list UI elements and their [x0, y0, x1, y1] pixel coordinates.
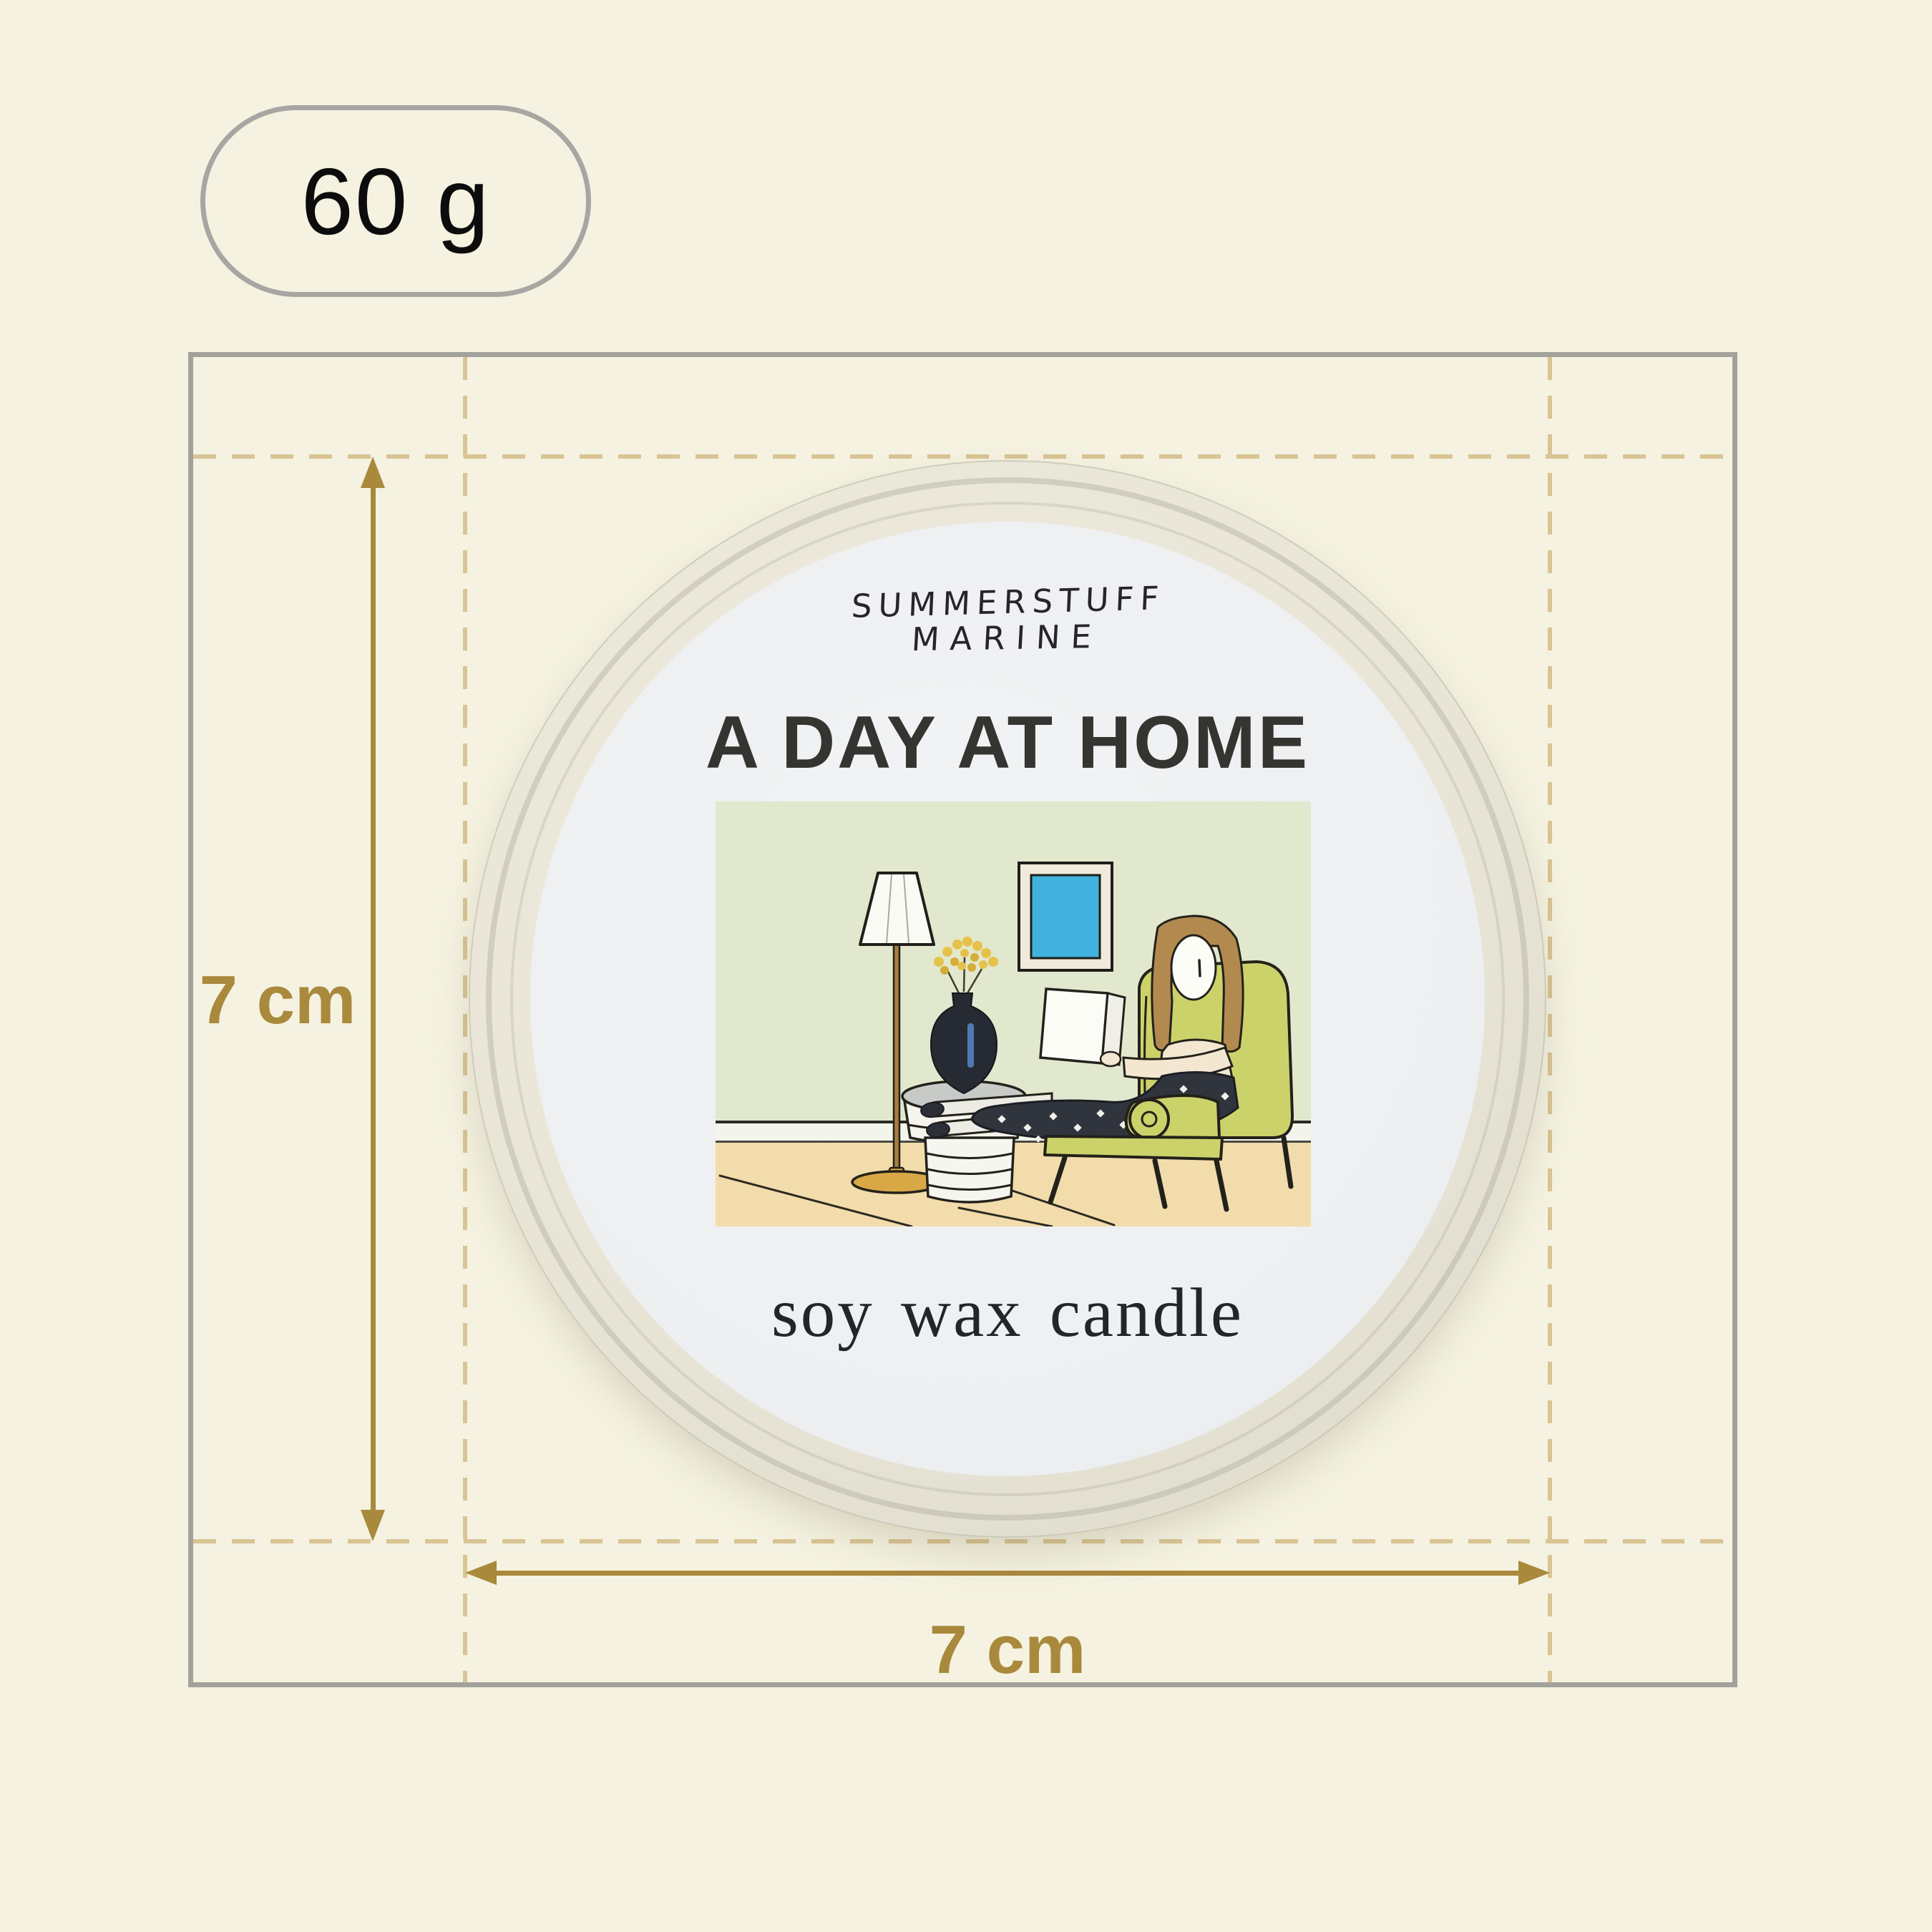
dashed-guide-bottom [193, 1539, 1732, 1543]
width-arrow-line [497, 1571, 1518, 1576]
arrowhead-up-icon [361, 457, 385, 488]
living-room-illustration [716, 801, 1311, 1226]
hand [1101, 1052, 1121, 1066]
book-page [1040, 989, 1108, 1063]
stool [925, 1138, 1014, 1202]
arrowhead-left-icon [465, 1561, 497, 1585]
picture-frame [1019, 863, 1112, 970]
arrowhead-right-icon [1518, 1561, 1550, 1585]
dashed-guide-left [463, 357, 467, 1682]
weight-badge: 60 g [200, 105, 591, 297]
product-subtitle: soy wax candle [530, 1266, 1485, 1359]
weight-badge-label: 60 g [301, 147, 491, 255]
face [1171, 935, 1216, 1000]
product-title: A DAY AT HOME [530, 700, 1485, 786]
eye [1199, 960, 1200, 976]
arrowhead-down-icon [361, 1510, 385, 1541]
tin-label: SUMMERSTUFF MARINE A DAY AT HOME [530, 522, 1485, 1476]
dashed-guide-top [193, 454, 1732, 459]
width-dimension-label: 7 cm [900, 1600, 1115, 1700]
dashed-guide-right [1548, 357, 1552, 1682]
height-dimension-label: 7 cm [170, 950, 385, 1050]
candle-tin-photo: SUMMERSTUFF MARINE A DAY AT HOME [469, 460, 1546, 1538]
product-dimension-diagram: 60 g 7 cm 7 cm SUMMERSTUFF MARINE A DAY … [0, 0, 1932, 1932]
